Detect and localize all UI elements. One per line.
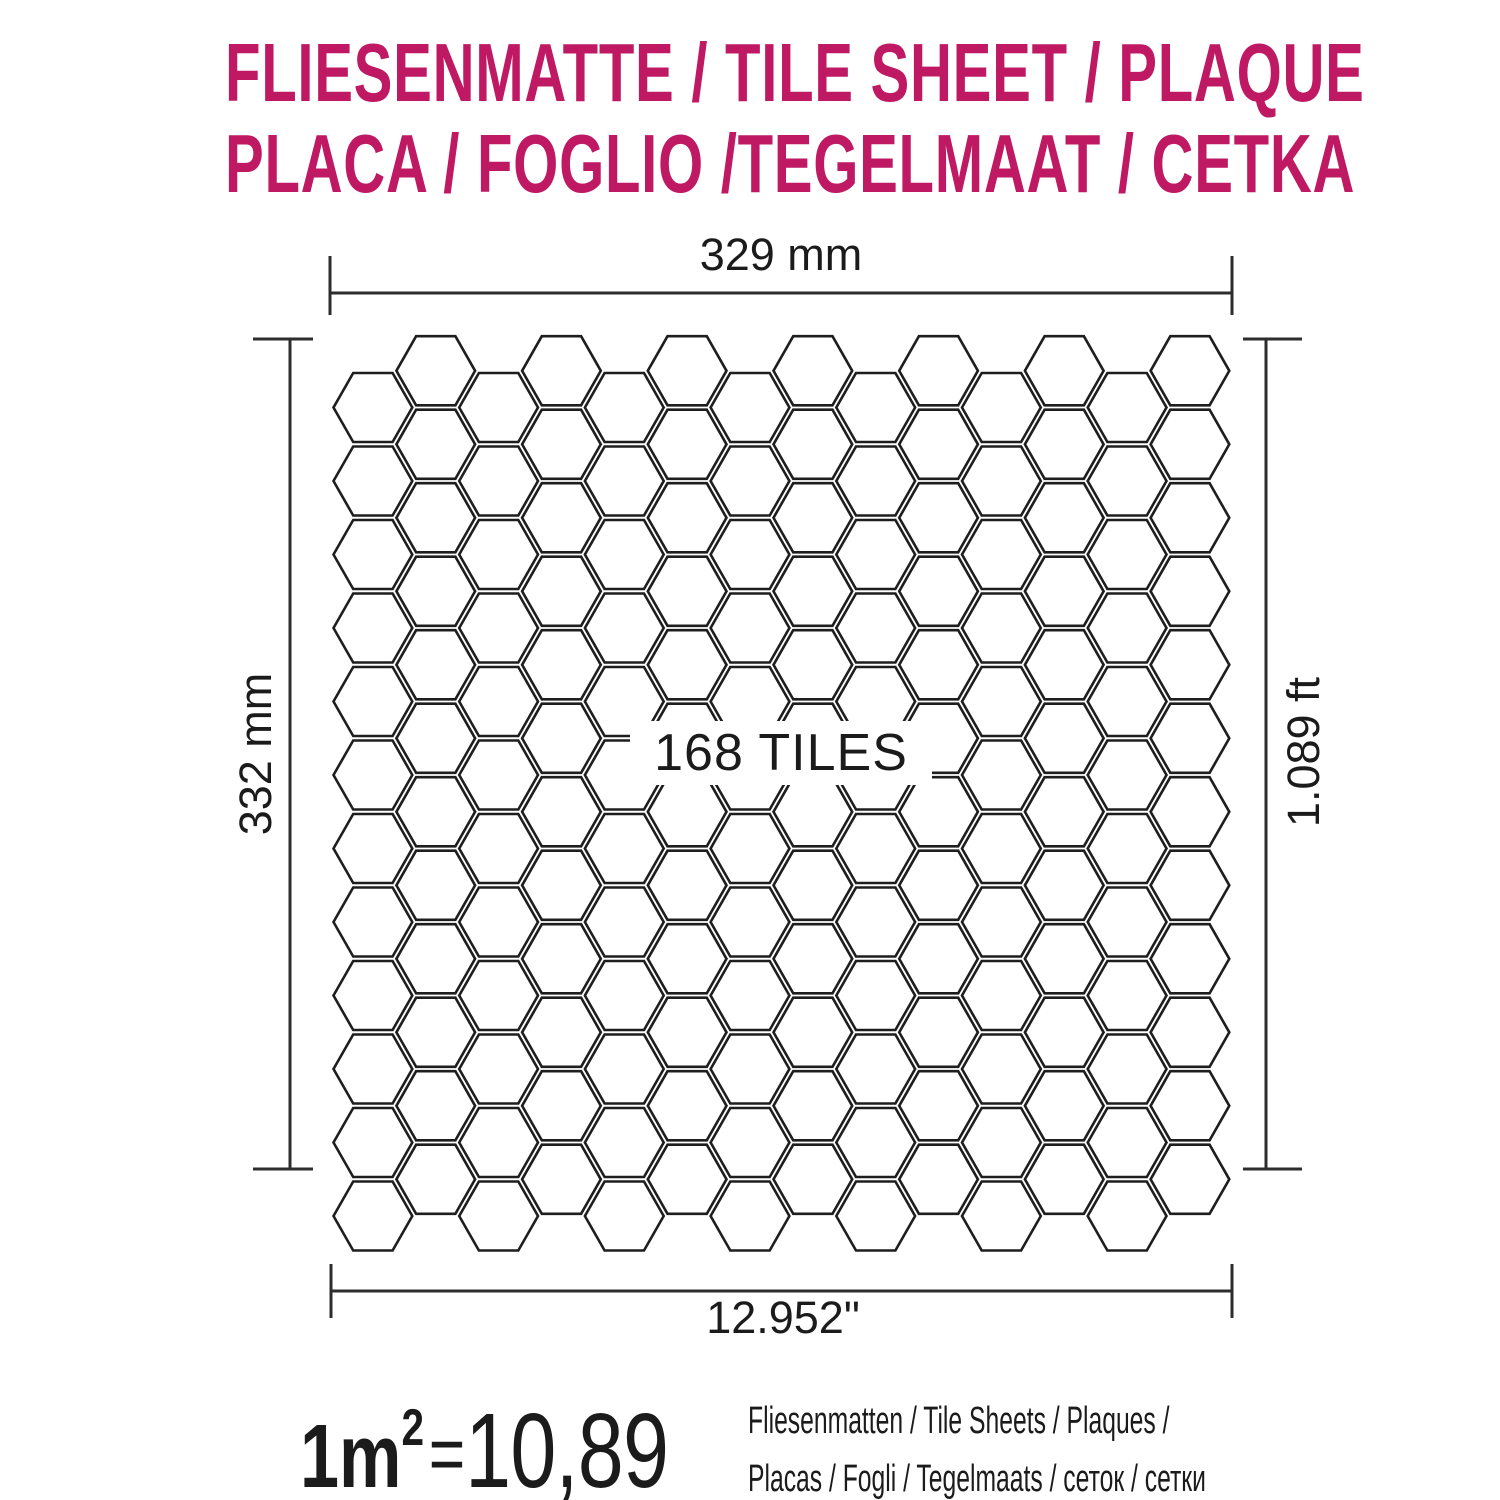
- coverage-units-line-2: Placas / Fogli / Tegelmaats / сеток / се…: [748, 1450, 1206, 1500]
- coverage-units: Fliesenmatten / Tile Sheets / Plaques / …: [748, 1392, 1206, 1500]
- coverage-formula: 1m2=10,89: [300, 1398, 668, 1500]
- dimension-bottom-label: 12.952": [583, 1295, 983, 1341]
- hexagon-tile-grid: [334, 336, 1230, 1250]
- coverage-area-label: 1m: [300, 1407, 401, 1500]
- coverage-units-line-1: Fliesenmatten / Tile Sheets / Plaques /: [748, 1392, 1206, 1450]
- tile-count-label: 168 TILES: [630, 721, 932, 785]
- dimension-top-label: 329 mm: [581, 232, 981, 278]
- dimension-left-label: 332 mm: [233, 604, 279, 904]
- dimension-right-label: 1.089 ft: [1281, 602, 1327, 902]
- coverage-area-exponent: 2: [401, 1399, 424, 1457]
- coverage-equals-sign: =: [429, 1409, 465, 1498]
- tile-sheet-diagram: FLIESENMATTE / TILE SHEET / PLAQUE PLACA…: [0, 0, 1500, 1500]
- coverage-value: 10,89: [465, 1392, 668, 1500]
